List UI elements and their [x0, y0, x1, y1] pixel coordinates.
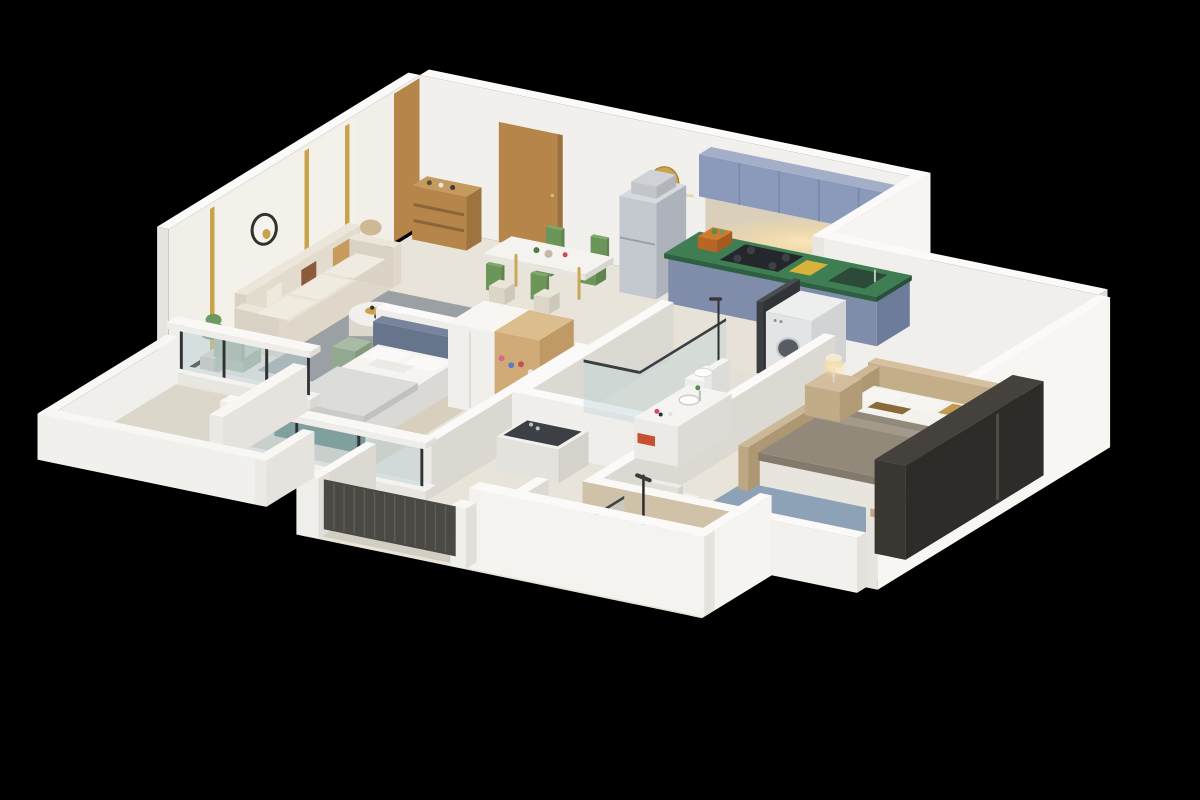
- floorplan-scene: [0, 0, 1200, 800]
- upper-cabinet-seam-3: [818, 179, 820, 221]
- entry-door-handle: [551, 194, 555, 198]
- shoe-rack: [412, 176, 481, 250]
- wall-clock-gold-dot: [262, 229, 270, 239]
- table-lamp-glow: [820, 357, 848, 379]
- dried-plant: [360, 220, 382, 236]
- master-wardrobe-seam: [996, 413, 999, 501]
- toilet-seat: [694, 368, 712, 377]
- wardrobe-door-seam: [469, 331, 471, 407]
- upper-cabinet-seam-2: [778, 171, 780, 213]
- floorplan-canvas: [0, 0, 1200, 800]
- upper-cabinet-seam-1: [738, 163, 740, 205]
- vanity-basin: [679, 395, 699, 405]
